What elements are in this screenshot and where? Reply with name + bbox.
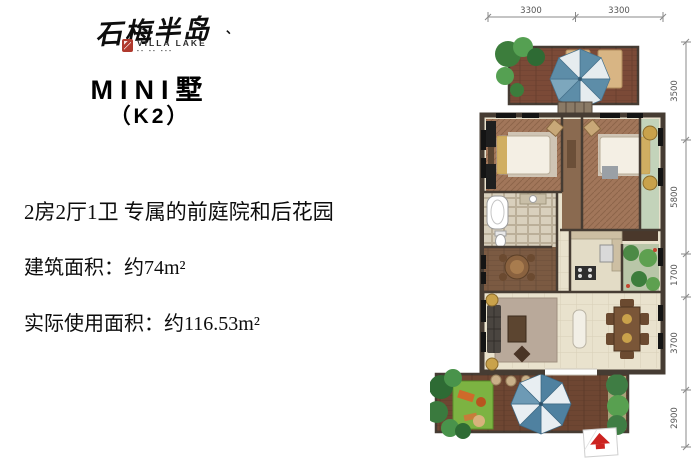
ceiling-medallion-icon (643, 176, 657, 190)
garden-trees-right-icon (606, 374, 629, 435)
terrace-umbrella-icon (550, 49, 610, 109)
bed-left-icon (488, 132, 557, 177)
wardrobe-icon (486, 164, 496, 189)
bathtub-icon (487, 196, 508, 229)
island-cabinet (573, 310, 586, 348)
sink-icon (600, 245, 613, 262)
floorplan-drawing: 3300 3300 3500 5800 1700 3700 2900 (430, 0, 700, 463)
flyer-page: { "logo": { "calligraphy": "石梅半岛", "acce… (0, 0, 700, 463)
coffee-table-icon (508, 316, 526, 342)
rear-door-opening (545, 369, 597, 376)
vanity-icon (520, 194, 546, 204)
dim-label-right: 3700 (670, 332, 680, 354)
brand-lockup: VILLA LAKE ▪▪ ▪▪ ▪▪▪ (122, 39, 232, 57)
unit-code: （K2） (55, 100, 245, 130)
rear-garden (430, 369, 629, 439)
dim-label-right: 2900 (670, 407, 680, 429)
dim-label-right: 1700 (670, 264, 680, 286)
dimension-chain-top (485, 12, 666, 22)
dimension-chain-right (681, 39, 691, 450)
dim-label-top: 3300 (608, 6, 630, 16)
stove-icon (575, 266, 596, 280)
ceiling-medallion-icon (643, 126, 657, 140)
usable-area-text: 实际使用面积：约116.53m² (24, 307, 260, 336)
built-area-text: 建筑面积：约74m² (24, 251, 186, 280)
unit-headline: 2房2厅1卫 专属的前庭院和后花园 (24, 196, 334, 226)
house-body (481, 113, 663, 376)
hall-console (567, 140, 576, 168)
dim-label-top: 3300 (520, 6, 542, 16)
dim-label-right: 5800 (670, 186, 680, 208)
garden-umbrella-icon (511, 374, 571, 434)
bed-right-icon (598, 134, 650, 179)
dim-label-right: 3500 (670, 80, 680, 102)
brand-seal-icon (122, 39, 133, 52)
lamp-icon (486, 294, 498, 306)
brand-accent-mark: 、 (226, 20, 238, 37)
brand-subtitle: VILLA LAKE (137, 39, 207, 48)
wardrobe-icon (486, 121, 496, 147)
brand-tagline-glyphs: ▪▪ ▪▪ ▪▪▪ (137, 48, 207, 54)
sofa-icon (487, 305, 501, 353)
north-indicator (583, 428, 618, 457)
lamp-icon (486, 358, 498, 370)
front-terrace (495, 37, 638, 117)
toilet-icon (495, 231, 506, 248)
hallway-floor (562, 119, 582, 230)
